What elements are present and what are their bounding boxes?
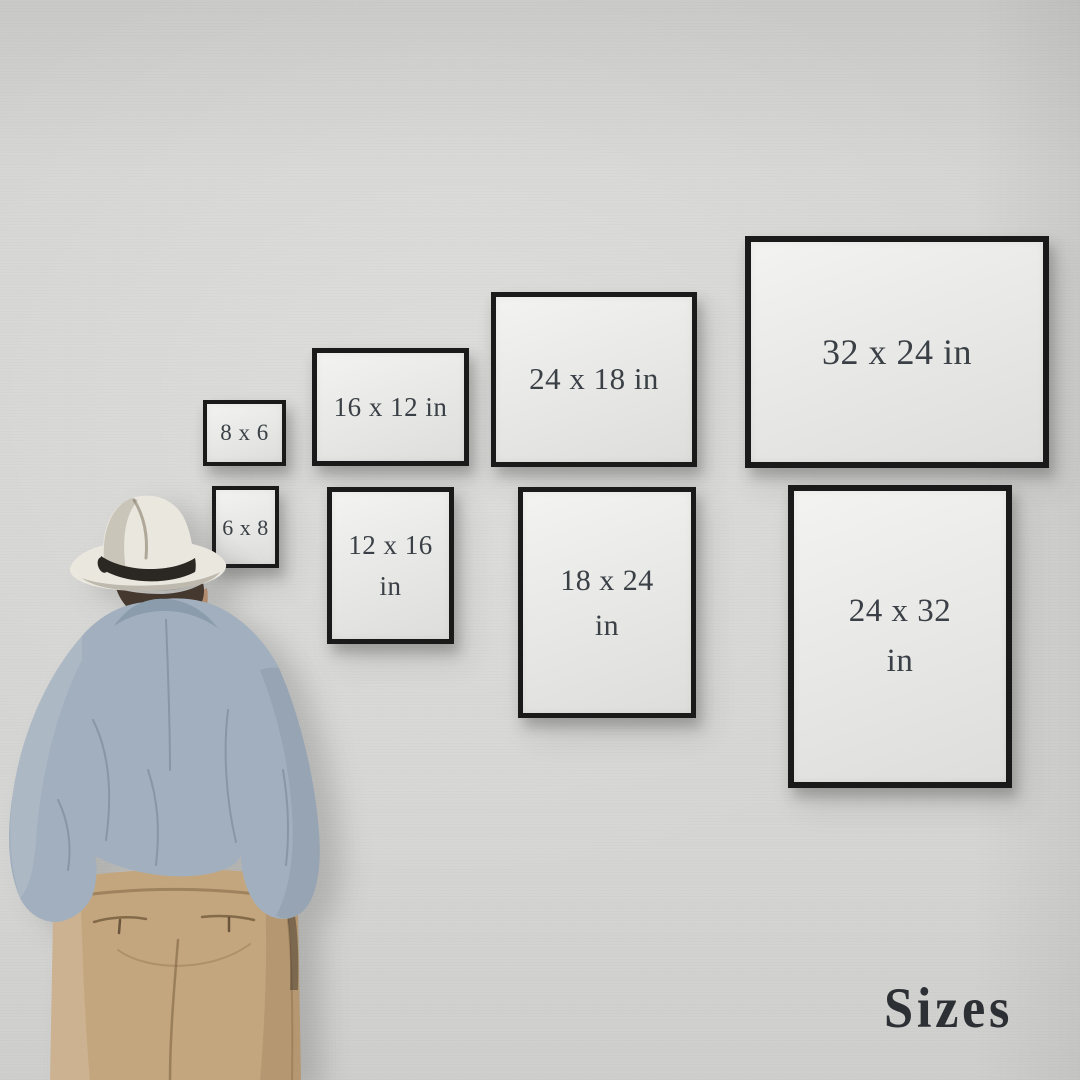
frame-24x32: 24 x 32 in (788, 485, 1012, 788)
frame-size-label: 12 x 16 in (343, 525, 438, 606)
frame-size-label: 24 x 18 in (529, 356, 659, 403)
frame-size-label: 16 x 12 in (334, 387, 448, 428)
frame-18x24: 18 x 24 in (518, 487, 696, 718)
wall: 8 x 6 16 x 12 in 24 x 18 in 32 x 24 in 6… (0, 0, 1080, 1080)
frame-24x18: 24 x 18 in (491, 292, 697, 467)
frame-size-label: 8 x 6 (220, 416, 269, 451)
frame-size-label: 24 x 32 in (842, 587, 958, 686)
sizes-caption: Sizes (884, 976, 1013, 1041)
shirt (9, 598, 320, 922)
frame-8x6: 8 x 6 (203, 400, 286, 466)
frame-12x16: 12 x 16 in (327, 487, 454, 644)
shirt-group (9, 598, 320, 922)
frame-size-label: 32 x 24 in (822, 325, 972, 379)
man-figure (0, 470, 340, 1080)
frame-32x24: 32 x 24 in (745, 236, 1049, 468)
frame-size-label: 18 x 24 in (555, 558, 660, 648)
hat-group (70, 496, 226, 591)
frame-16x12: 16 x 12 in (312, 348, 469, 466)
